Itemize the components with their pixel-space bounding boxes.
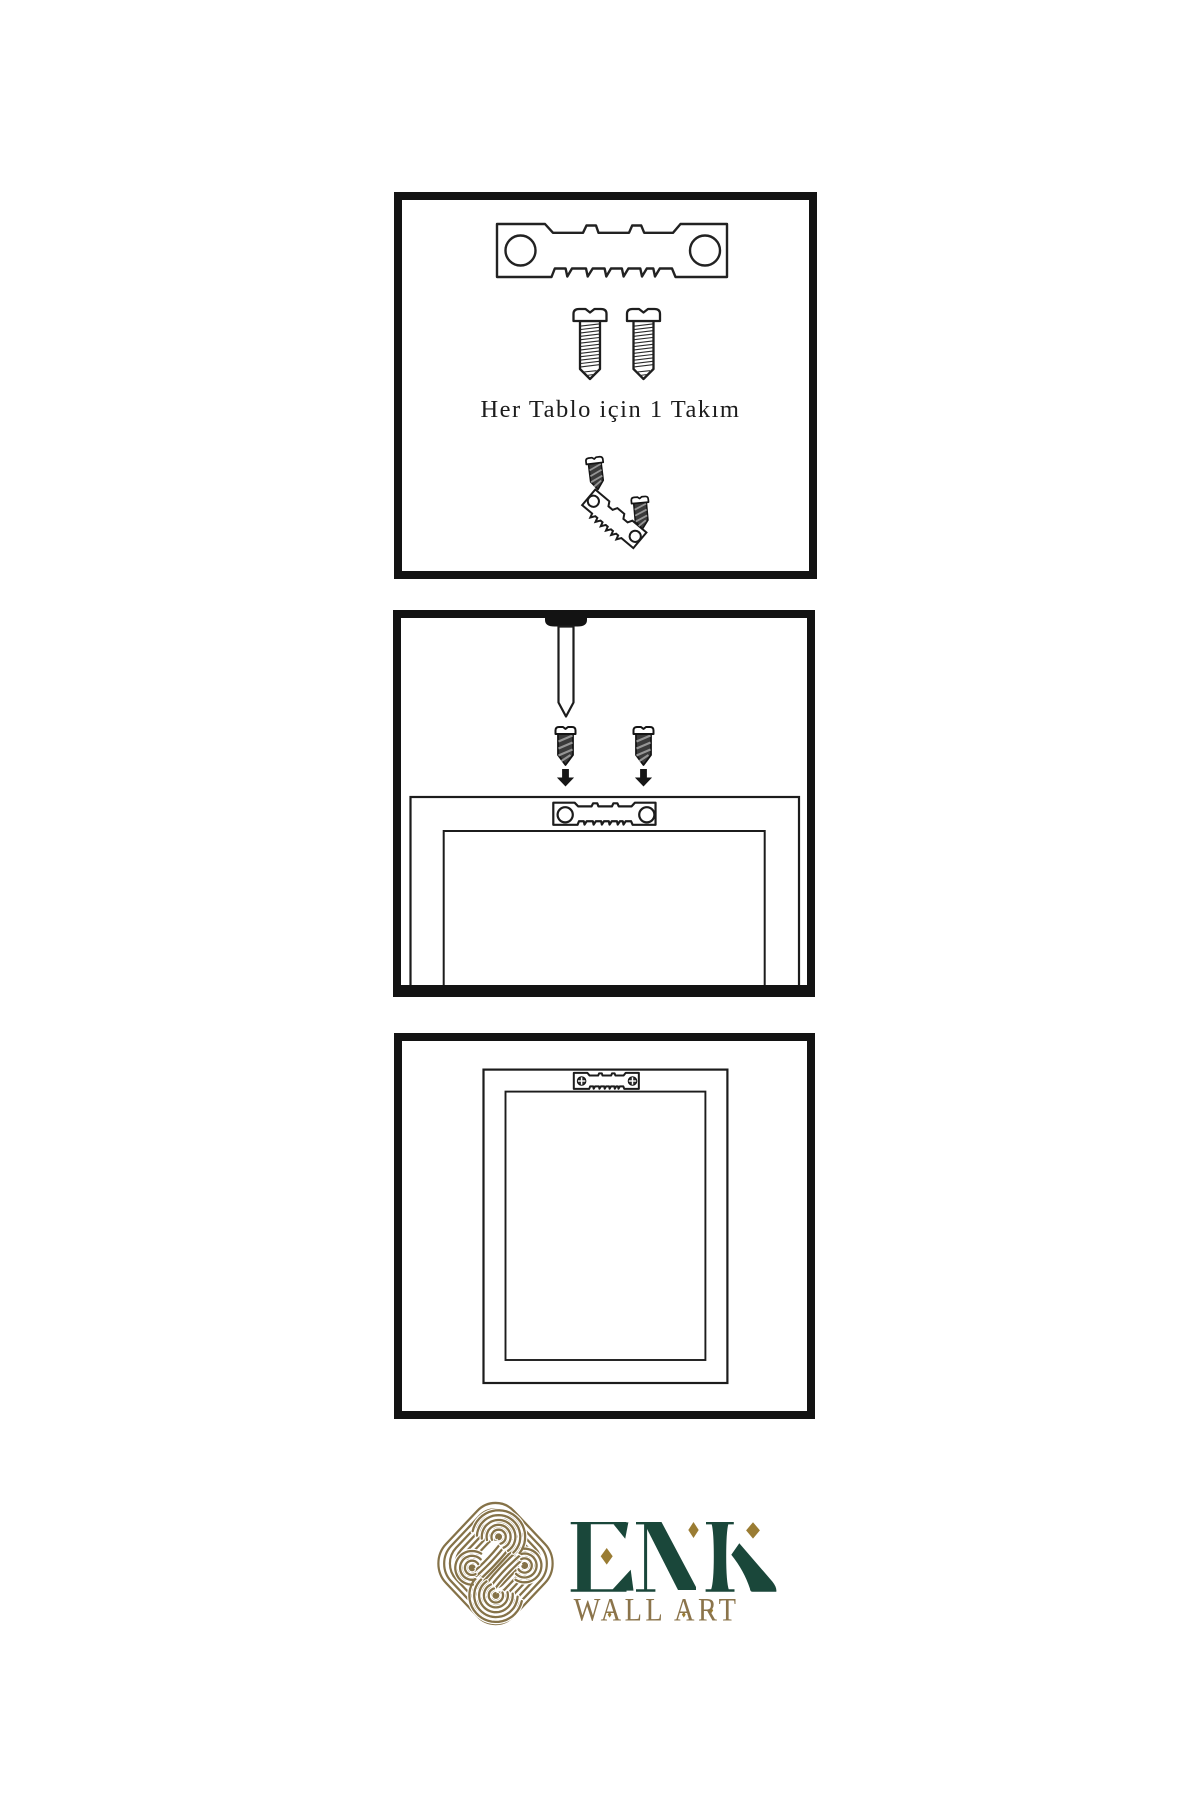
svg-text:Her Tablo için 1 Takım: Her Tablo için 1 Takım [480,396,740,423]
svg-text:WALL ART: WALL ART [574,1592,740,1628]
